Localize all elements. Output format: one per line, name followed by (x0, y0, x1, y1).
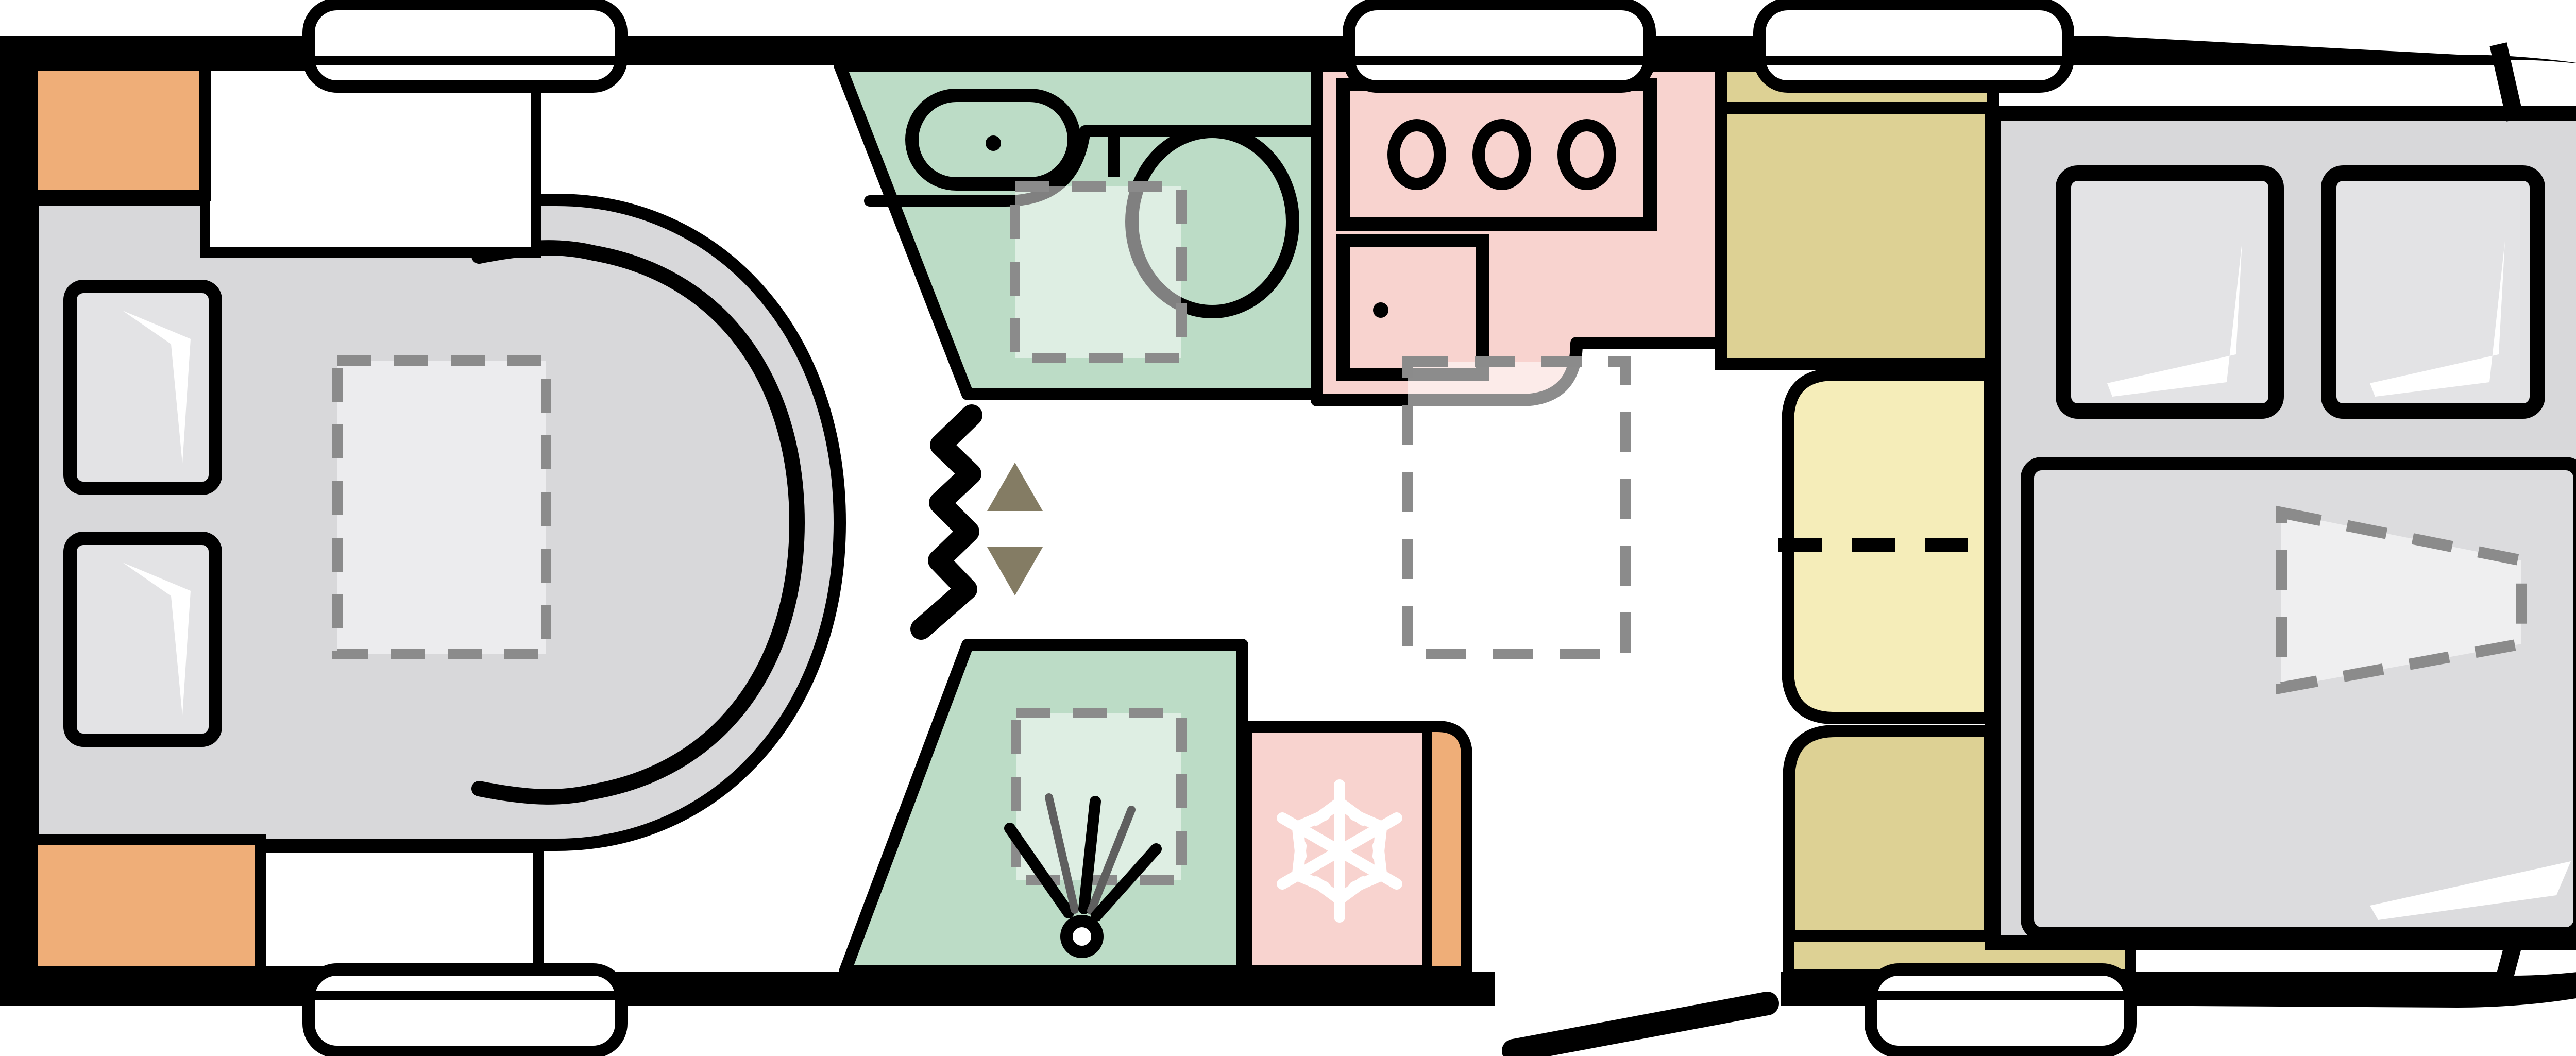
window-tab-bottom-bedroom (1871, 969, 2130, 1052)
washbasin-drain (986, 135, 1001, 151)
washroom-shower-tray (1015, 186, 1181, 358)
pillow-outline (70, 538, 215, 740)
fridge-side-stripe (1427, 727, 1466, 972)
aisle-table (1408, 362, 1625, 654)
window-frame (309, 969, 621, 1052)
lounge-pillow-bottom (70, 538, 215, 740)
cabinet-lower (1789, 731, 1990, 936)
window-tab-top-kitchen (1349, 4, 1650, 87)
hob-burner (1564, 125, 1610, 184)
bed-pillow-left (2063, 173, 2276, 411)
caravan-floorplan (0, 0, 2576, 1056)
storage-block-top-left (32, 65, 205, 196)
window-tab-top-front-lounge (309, 4, 621, 87)
window-tab-top-bedroom (1759, 4, 2068, 87)
lounge-table (337, 361, 546, 654)
kitchen-sink-icon (1343, 241, 1483, 374)
window-frame (1871, 969, 2130, 1052)
window-frame (1759, 4, 2068, 87)
window-frame (1349, 4, 1650, 87)
pillow-outline (70, 286, 215, 488)
window-tab-bottom-front-lounge (309, 969, 621, 1052)
kitchen-sink-drain (1373, 302, 1388, 318)
hob-burner (1394, 125, 1440, 184)
hob-burner (1479, 125, 1525, 184)
wheel-arch-box-bottom (260, 847, 538, 972)
window-frame (309, 4, 621, 87)
storage-block-bottom-left (32, 840, 260, 972)
shower-head-nozzle (1066, 921, 1097, 952)
bed-pillow-right (2329, 173, 2537, 411)
lounge-pillow-top (70, 286, 215, 488)
wheel-arch-box-top (205, 65, 536, 252)
